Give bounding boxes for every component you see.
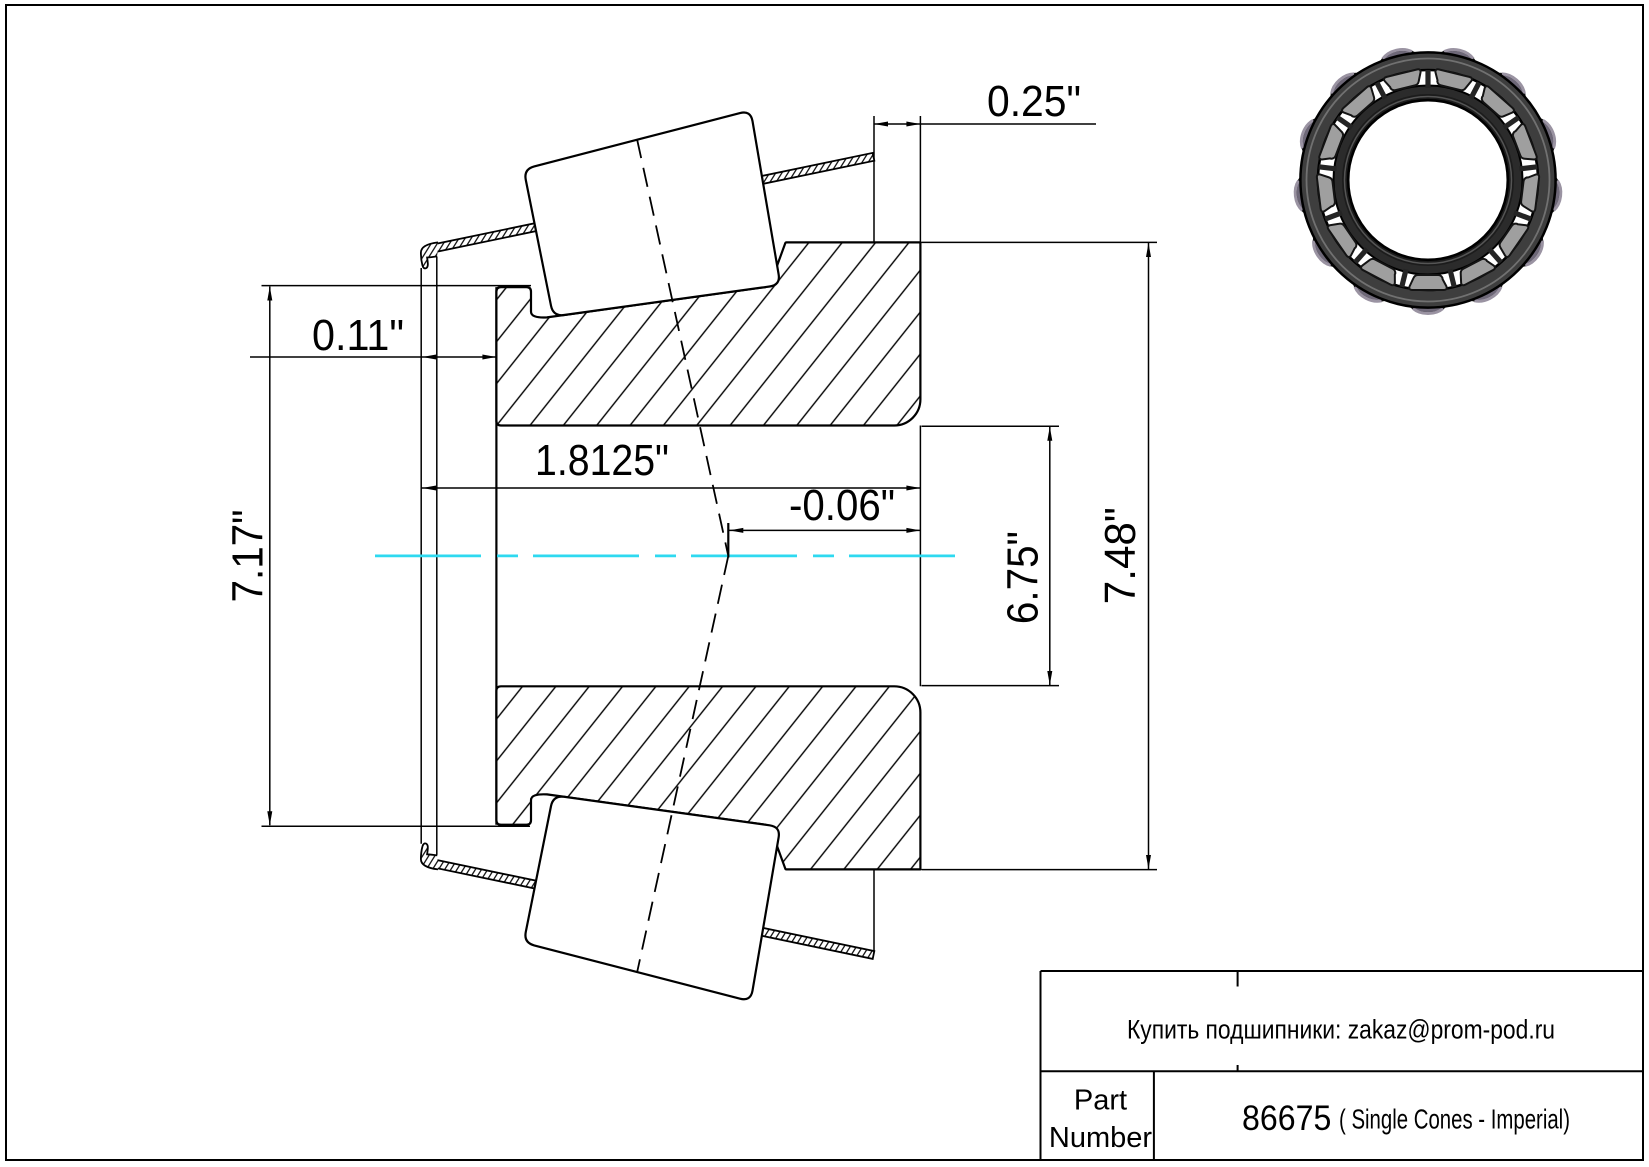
svg-text:Купить подшипники: zakaz@prom-: Купить подшипники: zakaz@prom-pod.ru [1127, 1015, 1555, 1045]
svg-text:Part: Part [1074, 1085, 1127, 1117]
svg-text:1.8125": 1.8125" [535, 436, 669, 485]
svg-text:86675: 86675 [1242, 1099, 1331, 1138]
svg-text:7.48": 7.48" [1096, 507, 1145, 604]
svg-text:-0.06": -0.06" [789, 481, 895, 530]
svg-text:( Single Cones - Imperial): ( Single Cones - Imperial) [1339, 1103, 1570, 1134]
svg-text:7.17": 7.17" [224, 510, 273, 603]
svg-text:6.75": 6.75" [999, 531, 1048, 624]
svg-text:0.11": 0.11" [312, 311, 404, 360]
svg-text:0.25": 0.25" [987, 77, 1081, 126]
svg-text:Number: Number [1049, 1122, 1152, 1154]
